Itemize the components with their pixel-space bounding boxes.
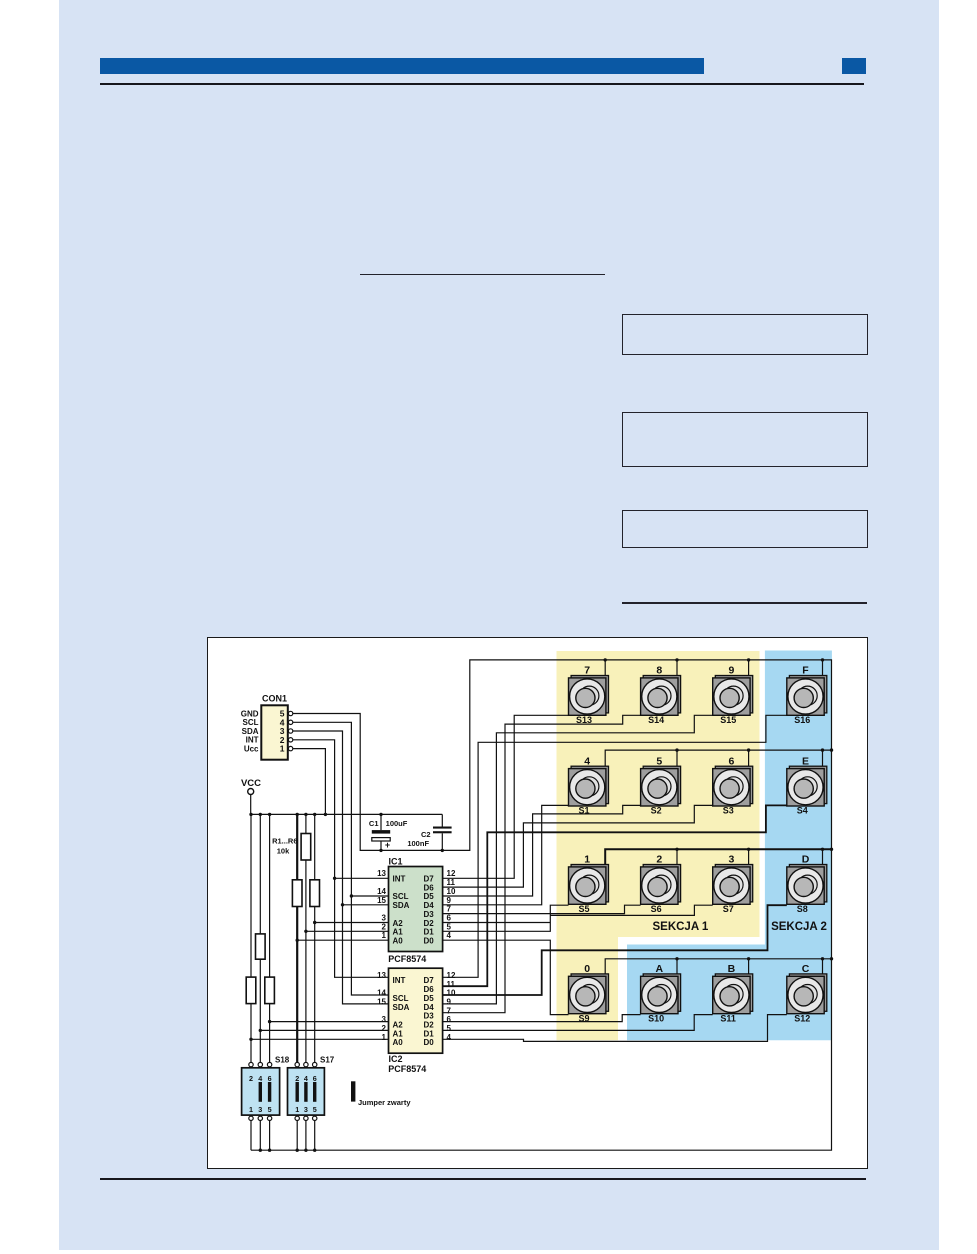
svg-text:S4: S4 bbox=[797, 806, 808, 816]
svg-text:2: 2 bbox=[382, 1024, 387, 1033]
svg-text:14: 14 bbox=[377, 989, 386, 998]
svg-text:10: 10 bbox=[447, 989, 456, 998]
svg-text:4: 4 bbox=[304, 1074, 308, 1083]
svg-text:+: + bbox=[385, 840, 390, 850]
svg-text:D6: D6 bbox=[424, 985, 435, 994]
svg-text:PCF8574: PCF8574 bbox=[388, 954, 426, 964]
svg-text:14: 14 bbox=[377, 887, 386, 896]
svg-text:C: C bbox=[802, 963, 810, 975]
svg-text:3: 3 bbox=[304, 1105, 308, 1114]
svg-text:7: 7 bbox=[447, 905, 452, 914]
svg-text:D3: D3 bbox=[424, 910, 435, 919]
svg-text:S12: S12 bbox=[794, 1013, 810, 1023]
svg-text:INT: INT bbox=[246, 736, 259, 745]
svg-text:6: 6 bbox=[447, 913, 452, 922]
svg-text:D0: D0 bbox=[424, 1038, 435, 1047]
svg-text:4: 4 bbox=[447, 1033, 452, 1042]
svg-text:6: 6 bbox=[447, 1015, 452, 1024]
svg-text:3: 3 bbox=[382, 913, 387, 922]
svg-text:3: 3 bbox=[728, 854, 734, 866]
svg-text:S17: S17 bbox=[320, 1056, 335, 1065]
svg-text:A1: A1 bbox=[393, 928, 404, 937]
svg-text:SDA: SDA bbox=[242, 727, 259, 736]
svg-text:9: 9 bbox=[728, 665, 734, 677]
svg-text:C1: C1 bbox=[369, 819, 379, 828]
svg-text:D5: D5 bbox=[424, 892, 435, 901]
svg-text:D1: D1 bbox=[424, 1029, 435, 1038]
svg-text:SDA: SDA bbox=[393, 1003, 410, 1012]
svg-text:2: 2 bbox=[249, 1074, 253, 1083]
svg-text:SEKCJA 1: SEKCJA 1 bbox=[652, 921, 708, 933]
svg-text:D4: D4 bbox=[424, 901, 435, 910]
svg-text:S5: S5 bbox=[578, 904, 589, 914]
svg-text:15: 15 bbox=[377, 896, 386, 905]
svg-text:8: 8 bbox=[656, 665, 662, 677]
svg-text:13: 13 bbox=[377, 869, 386, 878]
svg-text:C2: C2 bbox=[421, 830, 431, 839]
svg-text:1: 1 bbox=[249, 1105, 253, 1114]
svg-text:F: F bbox=[802, 665, 809, 677]
svg-text:CON1: CON1 bbox=[262, 694, 287, 704]
svg-text:4: 4 bbox=[258, 1074, 262, 1083]
svg-text:SCL: SCL bbox=[243, 718, 259, 727]
svg-text:D1: D1 bbox=[424, 928, 435, 937]
svg-text:4: 4 bbox=[447, 931, 452, 940]
svg-text:100nF: 100nF bbox=[407, 839, 429, 848]
svg-text:12: 12 bbox=[447, 869, 456, 878]
svg-text:A2: A2 bbox=[393, 919, 404, 928]
svg-text:S1: S1 bbox=[578, 806, 589, 816]
svg-text:9: 9 bbox=[447, 997, 452, 1006]
svg-text:1: 1 bbox=[280, 744, 285, 754]
svg-text:1: 1 bbox=[295, 1105, 299, 1114]
svg-text:1: 1 bbox=[584, 854, 590, 866]
svg-text:D2: D2 bbox=[424, 919, 435, 928]
svg-text:1: 1 bbox=[382, 931, 387, 940]
svg-text:A1: A1 bbox=[393, 1029, 404, 1038]
svg-text:7: 7 bbox=[584, 665, 590, 677]
svg-text:R1...R6: R1...R6 bbox=[272, 837, 297, 846]
svg-text:D4: D4 bbox=[424, 1003, 435, 1012]
svg-text:D0: D0 bbox=[424, 936, 435, 945]
svg-text:Jumper zwarty: Jumper zwarty bbox=[358, 1098, 411, 1107]
svg-text:IC2: IC2 bbox=[389, 1054, 403, 1064]
svg-text:S16: S16 bbox=[794, 715, 810, 725]
svg-text:D: D bbox=[802, 854, 810, 866]
svg-text:2: 2 bbox=[656, 854, 662, 866]
svg-text:13: 13 bbox=[377, 971, 386, 980]
svg-text:S9: S9 bbox=[578, 1013, 589, 1023]
svg-text:5: 5 bbox=[268, 1105, 272, 1114]
svg-text:GND: GND bbox=[241, 709, 259, 718]
svg-text:3: 3 bbox=[382, 1015, 387, 1024]
svg-text:D7: D7 bbox=[424, 976, 435, 985]
svg-text:1: 1 bbox=[382, 1033, 387, 1042]
svg-text:SDA: SDA bbox=[393, 901, 410, 910]
svg-text:B: B bbox=[728, 963, 736, 975]
svg-text:SCL: SCL bbox=[393, 892, 409, 901]
svg-text:S14: S14 bbox=[648, 715, 664, 725]
svg-text:7: 7 bbox=[447, 1006, 452, 1015]
svg-text:A: A bbox=[656, 963, 664, 975]
svg-text:5: 5 bbox=[656, 755, 662, 767]
svg-text:INT: INT bbox=[393, 875, 406, 884]
svg-text:A2: A2 bbox=[393, 1020, 404, 1029]
svg-text:A0: A0 bbox=[393, 936, 404, 945]
svg-text:A0: A0 bbox=[393, 1038, 404, 1047]
svg-text:S7: S7 bbox=[723, 904, 734, 914]
svg-text:5: 5 bbox=[447, 922, 452, 931]
svg-text:E: E bbox=[802, 755, 809, 767]
svg-text:2: 2 bbox=[295, 1074, 299, 1083]
svg-text:10: 10 bbox=[447, 887, 456, 896]
svg-text:S10: S10 bbox=[648, 1013, 664, 1023]
svg-text:D7: D7 bbox=[424, 875, 435, 884]
svg-text:S15: S15 bbox=[720, 715, 736, 725]
svg-text:12: 12 bbox=[447, 971, 456, 980]
svg-text:SEKCJA 2: SEKCJA 2 bbox=[771, 921, 827, 933]
svg-text:2: 2 bbox=[382, 922, 387, 931]
svg-text:D3: D3 bbox=[424, 1012, 435, 1021]
svg-text:D6: D6 bbox=[424, 883, 435, 892]
svg-text:S18: S18 bbox=[275, 1056, 290, 1065]
svg-text:SCL: SCL bbox=[393, 994, 409, 1003]
svg-text:D2: D2 bbox=[424, 1020, 435, 1029]
svg-text:S11: S11 bbox=[720, 1013, 736, 1023]
svg-text:10k: 10k bbox=[277, 847, 290, 856]
svg-text:100uF: 100uF bbox=[386, 819, 408, 828]
svg-text:3: 3 bbox=[258, 1105, 262, 1114]
svg-text:5: 5 bbox=[447, 1024, 452, 1033]
svg-text:Ucc: Ucc bbox=[244, 744, 259, 753]
svg-text:D5: D5 bbox=[424, 994, 435, 1003]
svg-text:INT: INT bbox=[393, 976, 406, 985]
svg-text:6: 6 bbox=[313, 1074, 317, 1083]
svg-text:11: 11 bbox=[447, 878, 456, 887]
svg-text:S8: S8 bbox=[797, 904, 808, 914]
svg-text:S2: S2 bbox=[651, 806, 662, 816]
svg-text:IC1: IC1 bbox=[389, 856, 403, 866]
svg-text:S6: S6 bbox=[651, 904, 662, 914]
svg-text:6: 6 bbox=[728, 755, 734, 767]
svg-text:S13: S13 bbox=[576, 715, 592, 725]
svg-text:PCF8574: PCF8574 bbox=[388, 1064, 426, 1074]
svg-text:VCC: VCC bbox=[241, 778, 261, 789]
svg-text:4: 4 bbox=[584, 755, 590, 767]
svg-text:0: 0 bbox=[584, 963, 590, 975]
svg-text:6: 6 bbox=[268, 1074, 272, 1083]
svg-text:9: 9 bbox=[447, 896, 452, 905]
svg-text:11: 11 bbox=[447, 980, 456, 989]
svg-text:5: 5 bbox=[313, 1105, 317, 1114]
svg-text:S3: S3 bbox=[723, 806, 734, 816]
svg-text:15: 15 bbox=[377, 997, 386, 1006]
